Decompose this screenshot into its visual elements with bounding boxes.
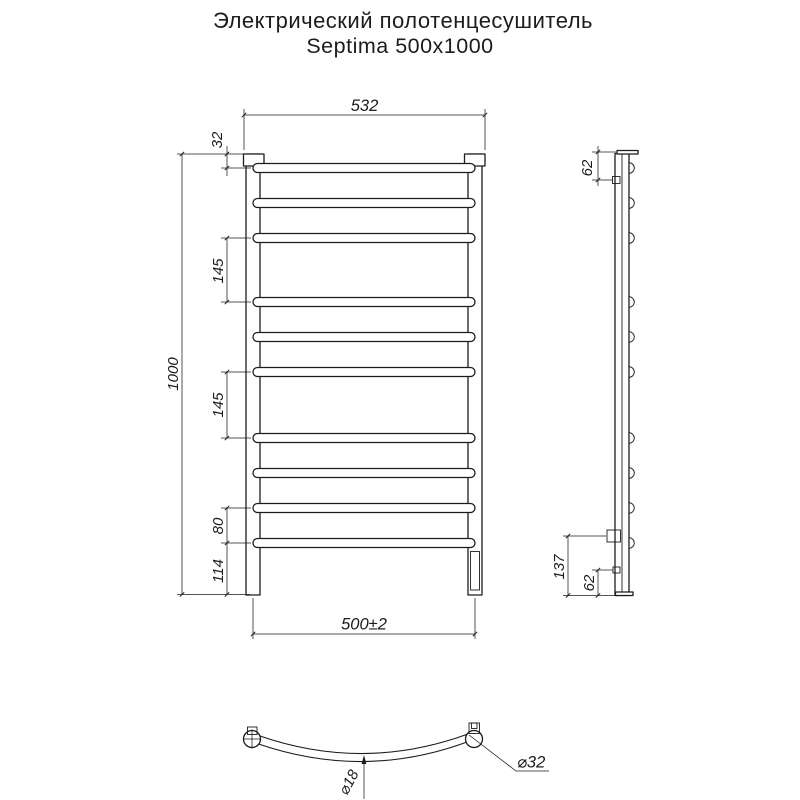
right-bracket-inner bbox=[472, 723, 478, 729]
side-top-cap bbox=[617, 151, 638, 155]
bottom-view bbox=[243, 723, 483, 762]
dim-middle-gap: 145 bbox=[210, 392, 227, 418]
rung bbox=[253, 469, 475, 478]
rung bbox=[253, 199, 475, 208]
side-rung-end bbox=[629, 198, 634, 209]
rung bbox=[253, 234, 475, 243]
dim-side-top-bracket: 62 bbox=[579, 159, 596, 176]
rung bbox=[253, 434, 475, 443]
rung bbox=[253, 504, 475, 513]
dim-lower-gap: 80 bbox=[210, 517, 227, 534]
dim-upper-gap: 145 bbox=[210, 258, 227, 284]
side-view bbox=[607, 151, 638, 596]
dim-side-bottom-bracket: 62 bbox=[581, 574, 598, 591]
side-rung-end bbox=[629, 468, 634, 479]
left-collector-crosshair bbox=[243, 730, 261, 749]
dim-mounting-width: 500±2 bbox=[341, 616, 387, 634]
dim-bottom-offset: 114 bbox=[210, 559, 227, 583]
dim-collector-diameter: ⌀32 bbox=[517, 754, 545, 772]
side-rung-end bbox=[629, 433, 634, 444]
technical-drawing: Электрический полотенцесушитель Septima … bbox=[0, 0, 800, 800]
dim-overall-width: 532 bbox=[351, 97, 379, 115]
rung bbox=[253, 298, 475, 307]
rung bbox=[253, 164, 475, 173]
side-rung-end bbox=[629, 367, 634, 378]
side-rung-end bbox=[629, 503, 634, 514]
front-rungs bbox=[253, 164, 475, 548]
rung bbox=[253, 539, 475, 548]
side-rung-end bbox=[629, 538, 634, 549]
side-rung-end bbox=[629, 163, 634, 174]
dim-rung-diameter: ⌀18 bbox=[336, 767, 363, 798]
rung-curve-outer bbox=[260, 734, 468, 754]
side-rung-end bbox=[629, 233, 634, 244]
side-rung-end bbox=[629, 297, 634, 308]
dim-side-element: 137 bbox=[551, 554, 568, 580]
front-view bbox=[244, 154, 486, 595]
side-bottom-cap bbox=[616, 592, 634, 596]
rung bbox=[253, 333, 475, 342]
side-rung-end bbox=[629, 332, 634, 343]
diameter18-arrow bbox=[362, 755, 367, 764]
rung bbox=[253, 368, 475, 377]
drawing-page: Электрический полотенцесушитель Septima … bbox=[0, 0, 800, 800]
drawing-title: Электрический полотенцесушитель bbox=[213, 8, 593, 33]
drawing-subtitle: Septima 500x1000 bbox=[306, 34, 493, 58]
dim-overall-height: 1000 bbox=[165, 357, 182, 391]
dim-top-offset: 32 bbox=[209, 131, 226, 148]
side-rung-ends bbox=[629, 163, 634, 549]
